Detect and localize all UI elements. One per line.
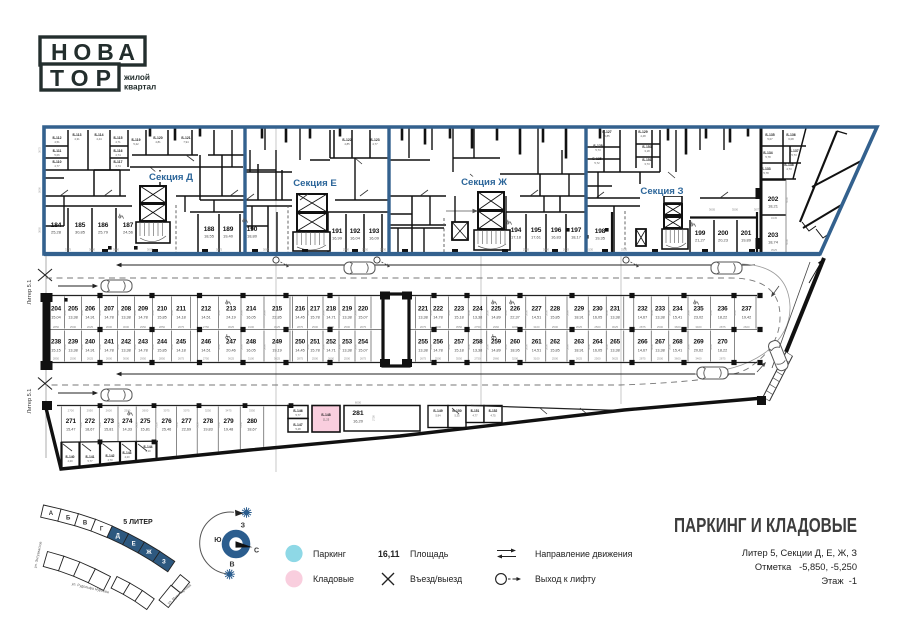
svg-text:5000: 5000 bbox=[263, 310, 267, 316]
svg-text:218: 218 bbox=[326, 305, 337, 312]
svg-text:5,48: 5,48 bbox=[295, 427, 301, 431]
svg-text:2950: 2950 bbox=[140, 357, 147, 361]
svg-text:2875: 2875 bbox=[719, 357, 726, 361]
svg-text:208: 208 bbox=[121, 305, 132, 312]
svg-text:7,94: 7,94 bbox=[183, 140, 189, 144]
svg-text:5000: 5000 bbox=[709, 310, 713, 316]
svg-text:4,71: 4,71 bbox=[115, 140, 121, 144]
svg-text:2930: 2930 bbox=[380, 248, 387, 252]
svg-text:15,85: 15,85 bbox=[157, 316, 167, 320]
svg-text:231: 231 bbox=[610, 305, 621, 312]
svg-text:14,89: 14,89 bbox=[491, 349, 501, 353]
svg-text:4,31: 4,31 bbox=[74, 137, 80, 141]
svg-text:4,44: 4,44 bbox=[96, 137, 102, 141]
svg-text:2625: 2625 bbox=[87, 325, 94, 329]
svg-text:5000: 5000 bbox=[263, 344, 267, 350]
svg-text:19,19: 19,19 bbox=[272, 349, 282, 353]
svg-text:Б-110: Б-110 bbox=[52, 160, 61, 164]
svg-text:3600: 3600 bbox=[674, 325, 681, 329]
svg-text:Б-143: Б-143 bbox=[123, 451, 132, 455]
svg-text:5000: 5000 bbox=[687, 344, 691, 350]
svg-text:5000: 5000 bbox=[80, 310, 84, 316]
svg-text:Б: Б bbox=[66, 515, 71, 521]
svg-text:Б-153: Б-153 bbox=[642, 145, 651, 149]
svg-text:193: 193 bbox=[369, 228, 380, 235]
svg-text:236: 236 bbox=[717, 305, 728, 312]
svg-text:216: 216 bbox=[295, 305, 306, 312]
svg-text:14,67: 14,67 bbox=[638, 349, 648, 353]
svg-text:5,35: 5,35 bbox=[454, 414, 460, 418]
svg-text:Б-137: Б-137 bbox=[789, 149, 798, 153]
svg-text:5000: 5000 bbox=[667, 310, 671, 316]
svg-text:14,33: 14,33 bbox=[122, 428, 132, 432]
svg-text:2500: 2500 bbox=[594, 357, 601, 361]
svg-text:2750: 2750 bbox=[474, 325, 481, 329]
svg-text:5000: 5000 bbox=[170, 310, 174, 316]
svg-text:14,71: 14,71 bbox=[326, 316, 336, 320]
svg-text:15,18: 15,18 bbox=[454, 349, 464, 353]
svg-text:253: 253 bbox=[342, 338, 353, 345]
svg-text:5000: 5000 bbox=[63, 310, 67, 316]
svg-text:224: 224 bbox=[472, 305, 483, 312]
svg-text:Секция З: Секция З bbox=[640, 186, 683, 197]
svg-text:14,78: 14,78 bbox=[433, 316, 443, 320]
svg-text:3100: 3100 bbox=[533, 325, 540, 329]
svg-text:5150: 5150 bbox=[175, 422, 179, 428]
svg-text:5150: 5150 bbox=[154, 422, 158, 428]
svg-text:206: 206 bbox=[85, 305, 96, 312]
svg-text:Б-125: Б-125 bbox=[592, 157, 601, 161]
svg-text:271: 271 bbox=[66, 418, 77, 425]
svg-text:18,91: 18,91 bbox=[574, 349, 584, 353]
svg-text:19,42: 19,42 bbox=[742, 316, 752, 320]
svg-text:Кладовые: Кладовые bbox=[313, 574, 354, 584]
svg-text:5000: 5000 bbox=[566, 310, 570, 316]
svg-text:25,28: 25,28 bbox=[51, 230, 62, 235]
svg-text:3060: 3060 bbox=[263, 248, 270, 252]
svg-text:5,77: 5,77 bbox=[87, 459, 93, 463]
svg-text:14,45: 14,45 bbox=[295, 316, 305, 320]
svg-text:18,74: 18,74 bbox=[768, 240, 779, 245]
svg-text:14,67: 14,67 bbox=[638, 316, 648, 320]
svg-text:212: 212 bbox=[201, 305, 212, 312]
svg-text:14,18: 14,18 bbox=[176, 316, 186, 320]
svg-text:4,70: 4,70 bbox=[107, 458, 113, 462]
svg-text:5150: 5150 bbox=[135, 422, 139, 428]
svg-text:225: 225 bbox=[491, 305, 502, 312]
svg-text:Д: Д bbox=[116, 534, 121, 540]
svg-text:3075: 3075 bbox=[754, 208, 761, 212]
svg-text:5,07: 5,07 bbox=[767, 137, 773, 141]
svg-text:5000: 5000 bbox=[687, 310, 691, 316]
svg-text:20,46: 20,46 bbox=[226, 349, 236, 353]
svg-text:251: 251 bbox=[310, 338, 321, 345]
svg-text:З: З bbox=[241, 523, 246, 530]
svg-text:5150: 5150 bbox=[196, 422, 200, 428]
svg-text:2625: 2625 bbox=[576, 325, 583, 329]
svg-text:2500: 2500 bbox=[657, 325, 664, 329]
svg-text:24,19: 24,19 bbox=[226, 316, 236, 320]
svg-text:2600: 2600 bbox=[106, 409, 113, 413]
svg-text:227: 227 bbox=[531, 305, 542, 312]
svg-text:17,18: 17,18 bbox=[511, 235, 522, 240]
svg-text:235: 235 bbox=[693, 305, 704, 312]
svg-text:2675: 2675 bbox=[178, 357, 185, 361]
svg-text:Б-152: Б-152 bbox=[489, 409, 498, 413]
svg-text:3005: 3005 bbox=[147, 248, 154, 252]
svg-text:С: С bbox=[254, 548, 259, 555]
svg-text:19,35: 19,35 bbox=[595, 236, 606, 241]
svg-text:14,78: 14,78 bbox=[104, 316, 114, 320]
svg-text:3,73: 3,73 bbox=[644, 162, 650, 166]
svg-text:Б-141: Б-141 bbox=[86, 455, 95, 459]
svg-text:5000: 5000 bbox=[63, 344, 67, 350]
svg-text:198: 198 bbox=[595, 228, 606, 235]
svg-text:Литер 5.1: Литер 5.1 bbox=[27, 389, 33, 414]
svg-text:248: 248 bbox=[246, 338, 257, 345]
svg-text:2980: 2980 bbox=[343, 248, 350, 252]
svg-text:16,09: 16,09 bbox=[369, 236, 380, 241]
svg-text:5000: 5000 bbox=[467, 310, 471, 316]
svg-text:2500: 2500 bbox=[70, 325, 77, 329]
svg-text:2500: 2500 bbox=[344, 325, 351, 329]
svg-text:5000: 5000 bbox=[605, 310, 609, 316]
svg-text:4,77: 4,77 bbox=[372, 142, 378, 146]
svg-text:5,06: 5,06 bbox=[54, 153, 60, 157]
svg-text:5000: 5000 bbox=[338, 310, 342, 316]
svg-text:16,04: 16,04 bbox=[350, 236, 361, 241]
svg-text:14,18: 14,18 bbox=[176, 349, 186, 353]
svg-text:14,51: 14,51 bbox=[532, 349, 542, 353]
svg-text:263: 263 bbox=[574, 338, 585, 345]
svg-text:2850: 2850 bbox=[53, 325, 60, 329]
svg-text:244: 244 bbox=[157, 338, 168, 345]
svg-text:15,85: 15,85 bbox=[550, 349, 560, 353]
svg-text:5,78: 5,78 bbox=[765, 155, 771, 159]
svg-text:2875: 2875 bbox=[297, 357, 304, 361]
svg-text:18,67: 18,67 bbox=[247, 428, 257, 432]
svg-text:278: 278 bbox=[203, 418, 214, 425]
svg-text:5000: 5000 bbox=[38, 187, 42, 193]
svg-text:197: 197 bbox=[571, 227, 582, 234]
svg-text:Б-119: Б-119 bbox=[131, 138, 140, 142]
svg-text:2875: 2875 bbox=[719, 325, 726, 329]
svg-text:2600: 2600 bbox=[106, 325, 113, 329]
svg-text:2625: 2625 bbox=[576, 357, 583, 361]
svg-text:Направление движения: Направление движения bbox=[535, 549, 633, 559]
svg-text:2750: 2750 bbox=[372, 415, 376, 421]
svg-text:204: 204 bbox=[51, 305, 62, 312]
svg-text:5000: 5000 bbox=[240, 310, 244, 316]
svg-text:жилой: жилой bbox=[123, 73, 150, 82]
svg-text:234: 234 bbox=[672, 305, 683, 312]
svg-text:14,51: 14,51 bbox=[201, 349, 211, 353]
svg-text:280: 280 bbox=[247, 418, 258, 425]
svg-text:Ж: Ж bbox=[145, 550, 152, 556]
svg-text:4,20: 4,20 bbox=[124, 455, 130, 459]
svg-text:5000: 5000 bbox=[338, 344, 342, 350]
svg-text:18,22: 18,22 bbox=[718, 349, 728, 353]
svg-text:5000: 5000 bbox=[587, 344, 591, 350]
svg-text:238: 238 bbox=[51, 338, 62, 345]
svg-text:5000: 5000 bbox=[354, 344, 358, 350]
svg-text:5000: 5000 bbox=[587, 310, 591, 316]
svg-text:219: 219 bbox=[342, 305, 353, 312]
svg-text:5000: 5000 bbox=[709, 344, 713, 350]
svg-text:241: 241 bbox=[104, 338, 115, 345]
svg-text:269: 269 bbox=[693, 338, 704, 345]
svg-text:229: 229 bbox=[574, 305, 585, 312]
svg-text:5000: 5000 bbox=[151, 310, 155, 316]
svg-text:14,45: 14,45 bbox=[295, 349, 305, 353]
svg-text:19,40: 19,40 bbox=[223, 234, 234, 239]
svg-text:Б-127: Б-127 bbox=[602, 130, 611, 134]
svg-text:203: 203 bbox=[768, 232, 779, 239]
svg-text:18,91: 18,91 bbox=[574, 316, 584, 320]
svg-text:Б-120: Б-120 bbox=[153, 136, 162, 140]
svg-text:186: 186 bbox=[98, 222, 109, 229]
svg-text:258: 258 bbox=[472, 338, 483, 345]
svg-text:5000: 5000 bbox=[504, 344, 508, 350]
svg-text:5,85: 5,85 bbox=[604, 134, 610, 138]
svg-text:252: 252 bbox=[326, 338, 337, 345]
svg-text:Б-123: Б-123 bbox=[370, 138, 379, 142]
svg-text:5000: 5000 bbox=[667, 344, 671, 350]
svg-text:250: 250 bbox=[295, 338, 306, 345]
svg-text:16,05: 16,05 bbox=[593, 349, 603, 353]
svg-text:5000: 5000 bbox=[322, 310, 326, 316]
svg-text:13,38: 13,38 bbox=[342, 349, 352, 353]
svg-text:2625: 2625 bbox=[87, 357, 94, 361]
svg-text:232: 232 bbox=[637, 305, 648, 312]
svg-text:5000: 5000 bbox=[485, 310, 489, 316]
svg-text:205: 205 bbox=[68, 305, 79, 312]
svg-text:16,05: 16,05 bbox=[246, 316, 256, 320]
svg-text:5,94: 5,94 bbox=[435, 414, 441, 418]
svg-text:243: 243 bbox=[138, 338, 149, 345]
svg-text:5000: 5000 bbox=[544, 310, 548, 316]
svg-text:5000: 5000 bbox=[524, 310, 528, 316]
svg-text:2600: 2600 bbox=[106, 357, 113, 361]
svg-text:15,15: 15,15 bbox=[51, 349, 61, 353]
svg-text:Б-114: Б-114 bbox=[94, 133, 103, 137]
svg-text:13,38: 13,38 bbox=[68, 316, 78, 320]
svg-text:2500: 2500 bbox=[657, 357, 664, 361]
svg-text:5,78: 5,78 bbox=[763, 171, 769, 175]
svg-text:3100: 3100 bbox=[533, 357, 540, 361]
svg-text:276: 276 bbox=[161, 418, 172, 425]
svg-text:15,07: 15,07 bbox=[358, 349, 368, 353]
svg-text:Секция Ж: Секция Ж bbox=[461, 177, 507, 188]
svg-text:268: 268 bbox=[672, 338, 683, 345]
svg-text:18,21: 18,21 bbox=[768, 204, 779, 209]
svg-text:230: 230 bbox=[592, 305, 603, 312]
svg-text:2750: 2750 bbox=[203, 357, 210, 361]
svg-text:215: 215 bbox=[272, 305, 283, 312]
svg-text:15,07: 15,07 bbox=[358, 316, 368, 320]
svg-text:5,72: 5,72 bbox=[594, 161, 600, 165]
svg-text:Б-142: Б-142 bbox=[106, 454, 115, 458]
svg-text:4,75: 4,75 bbox=[490, 414, 496, 418]
svg-text:5000: 5000 bbox=[306, 344, 310, 350]
svg-text:19,89: 19,89 bbox=[741, 238, 752, 243]
svg-text:Б-116: Б-116 bbox=[113, 149, 122, 153]
svg-text:Б-147: Б-147 bbox=[293, 423, 302, 427]
svg-text:4,73: 4,73 bbox=[786, 167, 792, 171]
svg-text:13,38: 13,38 bbox=[473, 316, 483, 320]
svg-text:18,17: 18,17 bbox=[571, 235, 582, 240]
svg-text:5,22: 5,22 bbox=[133, 142, 139, 146]
svg-text:5000: 5000 bbox=[98, 344, 102, 350]
svg-text:239: 239 bbox=[68, 338, 79, 345]
svg-text:Ю: Ю bbox=[214, 537, 221, 544]
svg-text:256: 256 bbox=[433, 338, 444, 345]
svg-text:3,18: 3,18 bbox=[644, 149, 650, 153]
svg-text:15,85: 15,85 bbox=[157, 349, 167, 353]
svg-text:13,38: 13,38 bbox=[655, 316, 665, 320]
svg-text:Секция Е: Секция Е bbox=[293, 178, 337, 189]
svg-text:3445: 3445 bbox=[771, 216, 778, 220]
svg-text:13,38: 13,38 bbox=[610, 316, 620, 320]
svg-text:Б-151: Б-151 bbox=[642, 158, 651, 162]
svg-text:2850: 2850 bbox=[159, 325, 166, 329]
svg-text:266: 266 bbox=[637, 338, 648, 345]
svg-text:226: 226 bbox=[510, 305, 521, 312]
svg-text:13,38: 13,38 bbox=[655, 349, 665, 353]
svg-text:185: 185 bbox=[75, 222, 86, 229]
svg-text:281: 281 bbox=[352, 410, 364, 417]
svg-text:13,38: 13,38 bbox=[121, 316, 131, 320]
svg-text:5000: 5000 bbox=[170, 344, 174, 350]
svg-text:5,73: 5,73 bbox=[791, 153, 797, 157]
svg-text:3605: 3605 bbox=[38, 227, 42, 233]
svg-text:190: 190 bbox=[247, 226, 258, 233]
svg-text:2875: 2875 bbox=[639, 357, 646, 361]
svg-text:ПАРКИНГ И КЛАДОВЫЕ: ПАРКИНГ И КЛАДОВЫЕ bbox=[674, 515, 857, 537]
svg-text:5000: 5000 bbox=[785, 197, 789, 203]
svg-text:Б-149: Б-149 bbox=[433, 409, 442, 413]
svg-text:Б-136: Б-136 bbox=[786, 133, 795, 137]
svg-text:4,77: 4,77 bbox=[472, 414, 478, 418]
svg-text:3000: 3000 bbox=[113, 248, 120, 252]
svg-text:213: 213 bbox=[226, 305, 237, 312]
svg-text:Б-135: Б-135 bbox=[765, 133, 774, 137]
svg-text:14,91: 14,91 bbox=[85, 316, 95, 320]
svg-text:Отметка -5,850, -5,250: Отметка -5,850, -5,250 bbox=[755, 562, 857, 572]
svg-text:265: 265 bbox=[610, 338, 621, 345]
svg-text:5,10: 5,10 bbox=[145, 449, 151, 453]
svg-text:5000: 5000 bbox=[504, 310, 508, 316]
svg-text:6000: 6000 bbox=[355, 401, 362, 405]
svg-text:14,51: 14,51 bbox=[532, 316, 542, 320]
svg-text:16,99: 16,99 bbox=[332, 236, 343, 241]
svg-text:196: 196 bbox=[551, 227, 562, 234]
svg-text:13,38: 13,38 bbox=[121, 349, 131, 353]
svg-text:14,51: 14,51 bbox=[201, 316, 211, 320]
svg-text:2500: 2500 bbox=[312, 325, 319, 329]
svg-text:217: 217 bbox=[310, 305, 321, 312]
svg-text:4,74: 4,74 bbox=[115, 153, 121, 157]
svg-text:квартал: квартал bbox=[124, 83, 156, 92]
svg-text:274: 274 bbox=[122, 418, 133, 425]
svg-text:14,78: 14,78 bbox=[433, 349, 443, 353]
svg-text:14,89: 14,89 bbox=[491, 316, 501, 320]
svg-text:16,05: 16,05 bbox=[246, 349, 256, 353]
svg-text:192: 192 bbox=[350, 228, 361, 235]
svg-text:5000: 5000 bbox=[605, 344, 609, 350]
svg-text:3500: 3500 bbox=[732, 208, 739, 212]
svg-text:5,77: 5,77 bbox=[295, 413, 301, 417]
svg-text:Б-113: Б-113 bbox=[72, 133, 81, 137]
svg-text:259: 259 bbox=[491, 338, 502, 345]
svg-text:Площадь: Площадь bbox=[410, 549, 449, 559]
svg-text:Б-140: Б-140 bbox=[66, 455, 75, 459]
svg-text:Въезд/выезд: Въезд/выезд bbox=[410, 574, 462, 584]
svg-text:2500: 2500 bbox=[552, 357, 559, 361]
svg-text:2500: 2500 bbox=[70, 357, 77, 361]
svg-text:3625: 3625 bbox=[274, 325, 281, 329]
svg-text:2750: 2750 bbox=[362, 248, 369, 252]
svg-text:15,18: 15,18 bbox=[454, 316, 464, 320]
svg-text:18,67: 18,67 bbox=[85, 428, 95, 432]
svg-text:245: 245 bbox=[176, 338, 187, 345]
svg-text:5150: 5150 bbox=[79, 422, 83, 428]
svg-text:2675: 2675 bbox=[420, 325, 427, 329]
svg-text:Б-129: Б-129 bbox=[638, 130, 647, 134]
svg-text:11,25: 11,25 bbox=[323, 418, 330, 422]
svg-text:15,41: 15,41 bbox=[673, 349, 683, 353]
svg-text:2875: 2875 bbox=[297, 325, 304, 329]
svg-text:2750: 2750 bbox=[203, 325, 210, 329]
svg-text:5000: 5000 bbox=[524, 344, 528, 350]
svg-text:3075: 3075 bbox=[216, 248, 223, 252]
svg-text:5000: 5000 bbox=[544, 344, 548, 350]
svg-text:5000: 5000 bbox=[306, 310, 310, 316]
svg-text:2750: 2750 bbox=[474, 357, 481, 361]
svg-text:3130: 3130 bbox=[587, 248, 594, 252]
svg-text:222: 222 bbox=[433, 305, 444, 312]
svg-text:3525: 3525 bbox=[771, 248, 778, 252]
svg-text:2960: 2960 bbox=[493, 325, 500, 329]
svg-text:262: 262 bbox=[550, 338, 561, 345]
svg-text:5 ЛИТЕР: 5 ЛИТЕР bbox=[123, 519, 153, 526]
svg-text:2600: 2600 bbox=[142, 409, 149, 413]
svg-text:Б-134: Б-134 bbox=[763, 151, 772, 155]
svg-text:5,73: 5,73 bbox=[595, 148, 601, 152]
svg-text:Б-112: Б-112 bbox=[52, 136, 61, 140]
svg-text:5150: 5150 bbox=[117, 422, 121, 428]
svg-text:5000: 5000 bbox=[485, 344, 489, 350]
svg-text:2950: 2950 bbox=[87, 409, 94, 413]
svg-text:3175: 3175 bbox=[65, 248, 72, 252]
svg-text:5150: 5150 bbox=[239, 422, 243, 428]
svg-text:23,02: 23,02 bbox=[694, 316, 704, 320]
svg-text:223: 223 bbox=[454, 305, 465, 312]
svg-text:2905: 2905 bbox=[523, 248, 530, 252]
svg-text:240: 240 bbox=[85, 338, 96, 345]
svg-text:22,85: 22,85 bbox=[272, 316, 282, 320]
svg-text:200: 200 bbox=[718, 230, 729, 237]
svg-text:5000: 5000 bbox=[217, 344, 221, 350]
svg-text:209: 209 bbox=[138, 305, 149, 312]
svg-text:14,71: 14,71 bbox=[326, 349, 336, 353]
svg-text:Б-128: Б-128 bbox=[593, 144, 602, 148]
svg-text:249: 249 bbox=[272, 338, 283, 345]
svg-text:Выход к лифту: Выход к лифту bbox=[535, 574, 596, 584]
svg-text:4,85: 4,85 bbox=[344, 142, 350, 146]
svg-text:2500: 2500 bbox=[344, 357, 351, 361]
svg-text:2960: 2960 bbox=[493, 357, 500, 361]
